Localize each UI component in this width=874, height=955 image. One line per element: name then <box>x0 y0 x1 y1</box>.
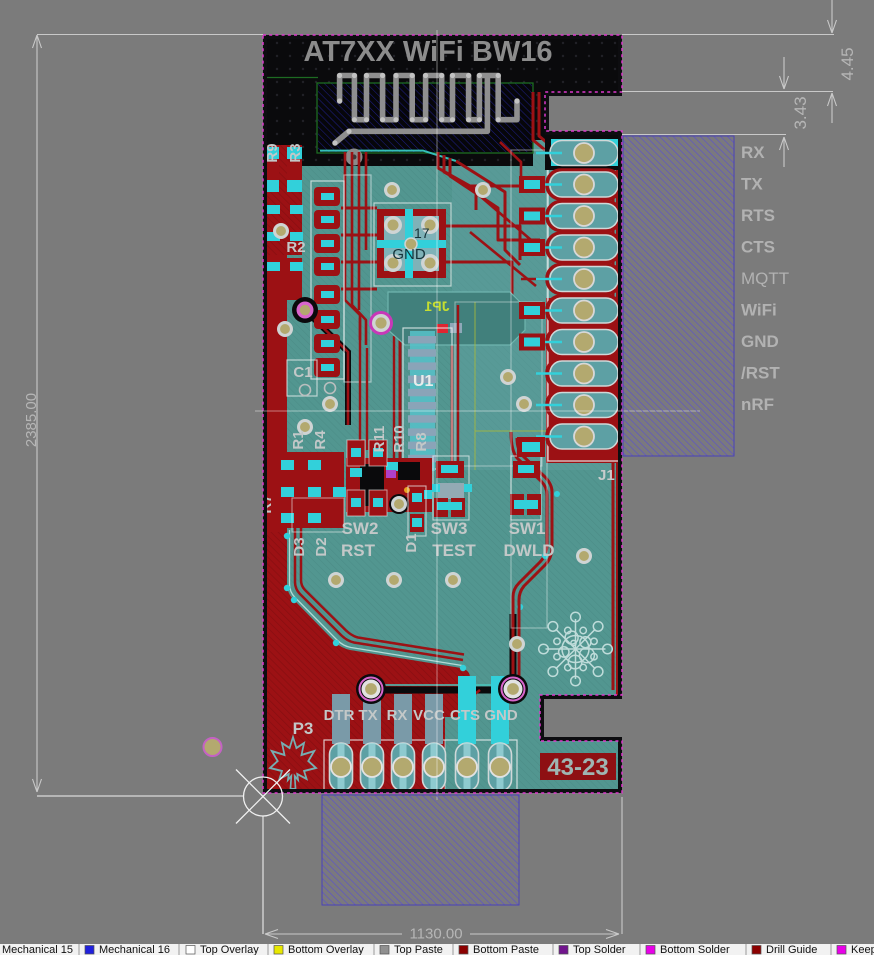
svg-text:4.45: 4.45 <box>838 47 857 80</box>
svg-text:MQTT: MQTT <box>741 269 789 288</box>
svg-text:CTS: CTS <box>741 238 775 257</box>
svg-text:GND: GND <box>484 707 518 724</box>
svg-text:1130.00: 1130.00 <box>409 926 462 943</box>
svg-text:VCC: VCC <box>413 707 445 724</box>
svg-text:WiFi: WiFi <box>741 301 777 320</box>
svg-text:RST: RST <box>341 541 376 560</box>
svg-text:R2: R2 <box>286 239 305 256</box>
svg-text:Mechanical 15: Mechanical 15 <box>2 944 73 955</box>
svg-text:Keep-O: Keep-O <box>851 944 874 955</box>
svg-text:Top Solder: Top Solder <box>573 944 626 955</box>
svg-text:R11: R11 <box>371 426 388 453</box>
svg-text:/RST: /RST <box>741 364 780 383</box>
svg-text:DWLD: DWLD <box>504 541 555 560</box>
svg-text:AT7XX WiFi BW16: AT7XX WiFi BW16 <box>304 36 553 68</box>
svg-text:17: 17 <box>414 225 430 241</box>
svg-text:43-23: 43-23 <box>547 754 608 781</box>
svg-text:Top Overlay: Top Overlay <box>200 944 259 955</box>
svg-text:TX: TX <box>741 175 763 194</box>
svg-text:RTS: RTS <box>741 206 775 225</box>
svg-text:CTS: CTS <box>450 707 480 724</box>
svg-text:TX: TX <box>358 707 377 724</box>
svg-text:2385.00: 2385.00 <box>23 393 40 447</box>
svg-text:R8: R8 <box>413 432 430 451</box>
svg-text:Bottom Paste: Bottom Paste <box>473 944 539 955</box>
svg-text:D2: D2 <box>313 537 330 556</box>
svg-text:Top Paste: Top Paste <box>394 944 443 955</box>
svg-text:nRF: nRF <box>741 395 774 414</box>
svg-text:RX: RX <box>387 707 408 724</box>
svg-text:J1: J1 <box>598 467 615 484</box>
svg-text:R4: R4 <box>312 430 329 450</box>
svg-text:TEST: TEST <box>432 541 476 560</box>
svg-text:P3: P3 <box>293 719 314 738</box>
svg-text:SW1: SW1 <box>509 519 546 538</box>
svg-text:GND: GND <box>741 332 779 351</box>
svg-text:Bottom Overlay: Bottom Overlay <box>288 944 364 955</box>
svg-text:DTR: DTR <box>324 707 355 724</box>
svg-text:R3: R3 <box>287 143 304 162</box>
svg-text:SW3: SW3 <box>431 519 468 538</box>
svg-text:D3: D3 <box>291 537 308 556</box>
svg-text:RX: RX <box>741 143 765 162</box>
svg-text:GND: GND <box>392 246 426 263</box>
svg-text:R1: R1 <box>290 430 307 449</box>
svg-text:Mechanical 16: Mechanical 16 <box>99 944 170 955</box>
svg-text:R10: R10 <box>391 425 408 453</box>
svg-text:SW2: SW2 <box>342 519 379 538</box>
svg-text:3.43: 3.43 <box>791 96 810 129</box>
svg-text:C1: C1 <box>293 364 312 381</box>
svg-text:Bottom Solder: Bottom Solder <box>660 944 730 955</box>
svg-text:U1: U1 <box>413 373 434 390</box>
svg-text:Drill Guide: Drill Guide <box>766 944 817 955</box>
svg-text:D1: D1 <box>403 533 420 552</box>
